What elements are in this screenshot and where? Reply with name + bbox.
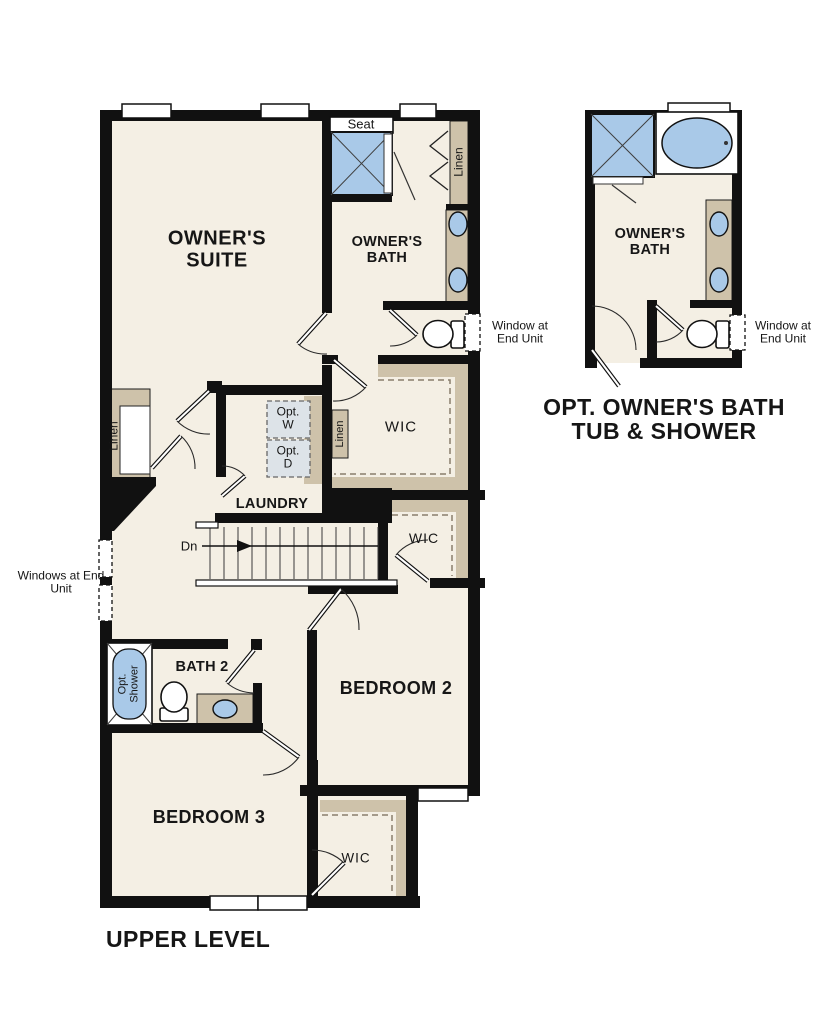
tub — [662, 118, 732, 168]
room-label-owners-bath: OWNER'S BATH — [340, 234, 435, 266]
wall-segment — [383, 301, 468, 310]
toilet-tank — [716, 321, 729, 348]
wall-segment — [585, 358, 597, 368]
wic-label-owners: WIC — [371, 420, 431, 437]
window — [122, 104, 171, 118]
stair-rail-bottom — [196, 580, 397, 586]
room-label-laundry: LAUNDRY — [212, 496, 332, 512]
opt-caption: OPT. OWNER'S BATH TUB & SHOWER — [524, 395, 804, 443]
wall-segment — [378, 490, 388, 588]
window — [418, 788, 468, 801]
opt-room-label-owners-bath: OWNER'S BATH — [603, 226, 698, 258]
wall-segment — [378, 490, 485, 500]
linen-label-wic: Linen — [334, 421, 346, 448]
shower-seat-label: Seat — [333, 118, 389, 133]
opt-dryer-label: Opt. D — [271, 445, 305, 472]
window — [210, 896, 258, 910]
stair-rail-top — [196, 522, 218, 528]
window — [400, 104, 436, 118]
level-title: UPPER LEVEL — [106, 927, 270, 951]
linen-closet-left-interior — [120, 406, 150, 474]
wic1-shelf-right — [455, 377, 468, 477]
wall-segment — [322, 365, 332, 490]
toilet — [423, 321, 453, 348]
wic1-shelf-top — [378, 364, 468, 377]
wic2-shelf-top — [388, 500, 468, 512]
toilet — [161, 682, 187, 712]
wic-label-bedroom2: WIC — [394, 531, 454, 547]
linen-label-top-right: Linen — [452, 147, 465, 176]
wall-segment — [307, 760, 318, 900]
wic2-shelf-right — [456, 512, 468, 578]
wall-segment — [446, 204, 468, 210]
window — [261, 104, 309, 118]
opt-window-note: Window at End Unit — [743, 320, 823, 347]
room-label-bedroom3: BEDROOM 3 — [129, 807, 289, 827]
wic-label-bedroom3: WIC — [326, 850, 386, 865]
shower-glass — [593, 177, 643, 184]
optional-window — [465, 314, 480, 351]
sink — [710, 268, 728, 292]
tub-faucet — [724, 141, 728, 145]
window — [258, 896, 307, 910]
wall-segment — [216, 385, 332, 395]
floor-plan-canvas — [0, 0, 829, 1026]
wall-segment — [430, 578, 485, 588]
wic3-shelf-top — [320, 800, 408, 812]
toilet — [687, 321, 717, 348]
opt-shower-label: Opt. Shower — [117, 655, 142, 713]
wall-segment — [251, 639, 262, 650]
room-label-bedroom2: BEDROOM 2 — [316, 678, 476, 698]
wall-segment — [406, 796, 418, 908]
wall-segment — [215, 513, 332, 523]
sink — [449, 268, 467, 292]
sink — [710, 212, 728, 236]
wall-segment — [690, 300, 742, 308]
wall-segment — [647, 300, 657, 358]
stairs-down-label: Dn — [181, 540, 198, 555]
shower-glass — [384, 134, 392, 193]
linen-label-left: Linen — [107, 421, 120, 450]
opt-washer-label: Opt. W — [271, 406, 305, 433]
room-label-bath2: BATH 2 — [175, 659, 230, 675]
room-label-owners-suite: OWNER'S SUITE — [137, 228, 297, 273]
wall-segment — [640, 358, 742, 368]
sink — [213, 700, 237, 718]
floor-plan-page: OWNER'S SUITE OWNER'S BATH Seat Linen Wi… — [0, 0, 829, 1026]
windows-note-left: Windows at End Unit — [17, 570, 105, 597]
window-note-right: Window at End Unit — [480, 320, 560, 347]
opt-caption-line2: TUB & SHOWER — [524, 419, 804, 443]
opt-caption-line1: OPT. OWNER'S BATH — [524, 395, 804, 419]
wall-segment — [216, 385, 226, 477]
sink — [449, 212, 467, 236]
wall-segment — [378, 355, 468, 364]
